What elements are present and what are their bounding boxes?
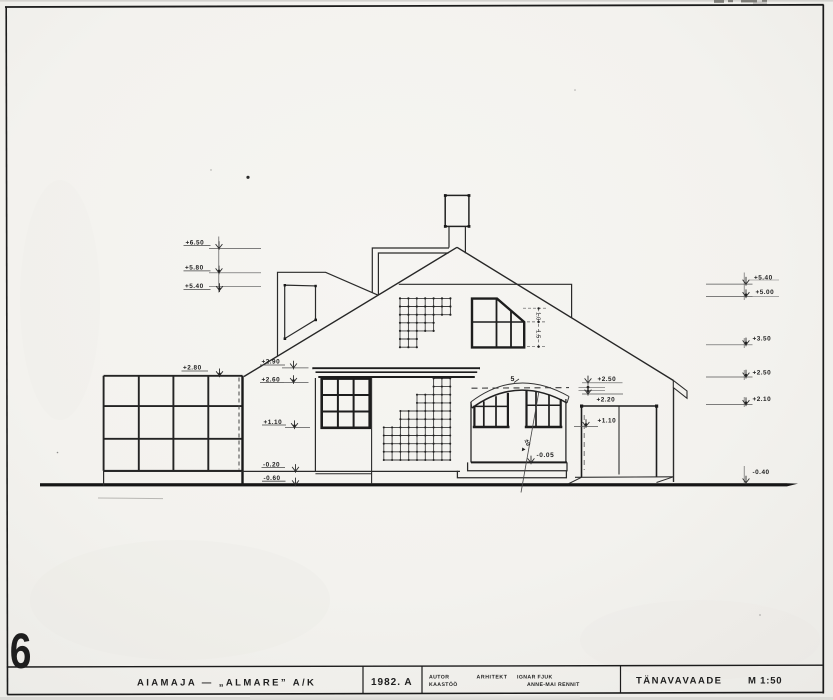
- svg-text:+3.50: +3.50: [753, 336, 772, 343]
- svg-text:AUTOR: AUTOR: [429, 675, 449, 681]
- svg-text:+5.00: +5.00: [756, 289, 775, 296]
- svg-text:+5.40: +5.40: [754, 275, 773, 282]
- svg-text:-0.05: -0.05: [537, 452, 555, 459]
- svg-text:TÄNAVAVAADE: TÄNAVAVAADE: [636, 675, 723, 687]
- svg-text:+2.50: +2.50: [598, 376, 617, 383]
- svg-text:KAASTÖÖ: KAASTÖÖ: [429, 681, 458, 688]
- svg-text:1.0: 1.0: [535, 312, 542, 321]
- svg-text:-0.40: -0.40: [753, 469, 770, 476]
- svg-text:+1.10: +1.10: [598, 417, 617, 424]
- svg-text:1982. A: 1982. A: [371, 677, 413, 688]
- svg-text:M 1:50: M 1:50: [748, 676, 782, 687]
- svg-text:+2.50: +2.50: [753, 369, 772, 376]
- svg-text:ARHITEKT: ARHITEKT: [477, 675, 508, 681]
- svg-text:AIAMAJA — „ALMARE” A/K: AIAMAJA — „ALMARE” A/K: [137, 678, 316, 689]
- svg-text:ANNE-MAI RENNIT: ANNE-MAI RENNIT: [527, 682, 580, 688]
- svg-text:+2.10: +2.10: [753, 396, 772, 403]
- svg-text:1.5: 1.5: [535, 330, 542, 339]
- svg-text:IGNAR FJUK: IGNAR FJUK: [517, 675, 553, 681]
- svg-text:6: 6: [10, 623, 32, 679]
- svg-text:+2.20: +2.20: [597, 397, 616, 404]
- svg-text:5: 5: [511, 376, 515, 383]
